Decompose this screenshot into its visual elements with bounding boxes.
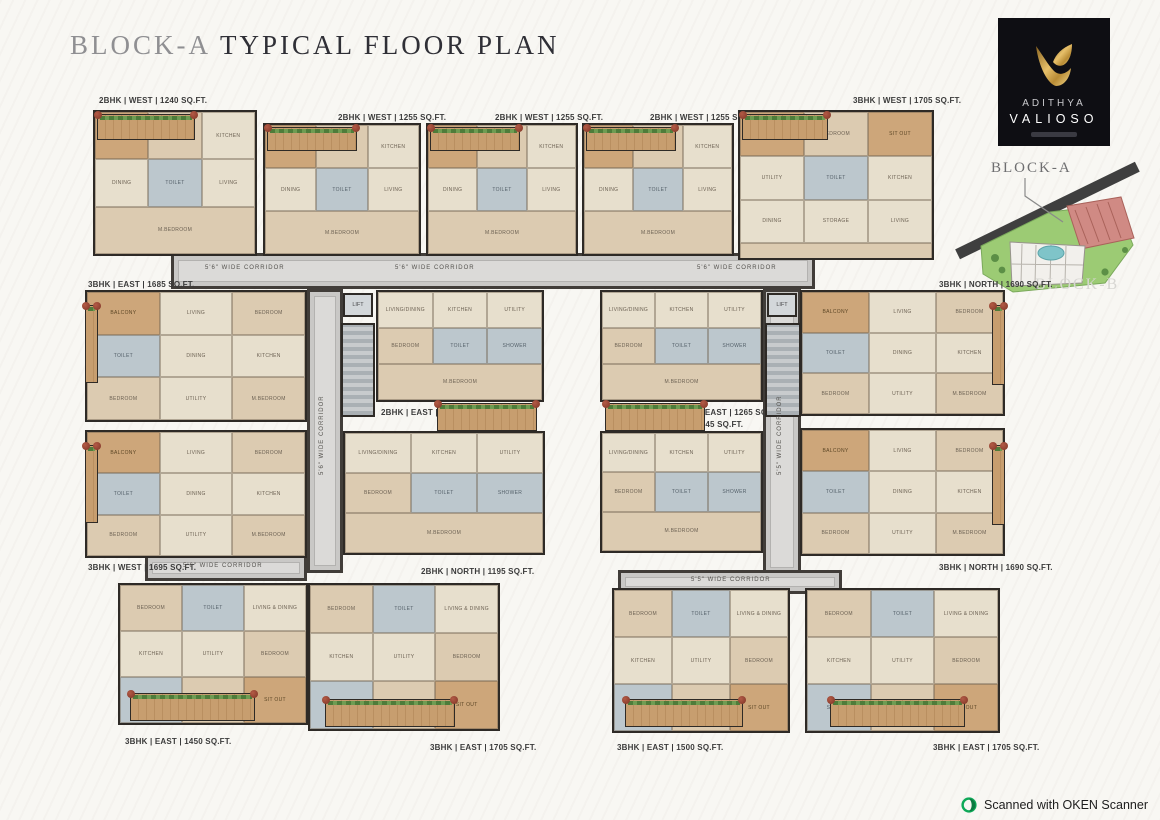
flower-pot: [434, 400, 442, 408]
corridor: [307, 289, 343, 573]
balcony: [992, 445, 1005, 525]
flower-pot: [322, 696, 330, 704]
page-title-text: TYPICAL FLOOR PLAN: [220, 30, 560, 60]
flower-pot: [82, 302, 90, 310]
flower-pot: [93, 442, 101, 450]
room-living: LIVING: [868, 200, 932, 244]
brand-tagline: [1031, 132, 1077, 137]
corridor-label: 5'5" WIDE CORRIDOR: [691, 577, 771, 583]
room-dining: DINING: [584, 168, 633, 211]
room-bedroom: BEDROOM: [378, 328, 433, 364]
flower-pot: [823, 111, 831, 119]
flower-pot: [1000, 442, 1008, 450]
flower-pot: [250, 690, 258, 698]
room-toilet: TOILET: [633, 168, 682, 211]
room-kitchen: KITCHEN: [232, 335, 305, 378]
flower-pot: [1000, 302, 1008, 310]
room-kitchen: KITCHEN: [527, 125, 576, 168]
room-bedroom: BEDROOM: [802, 373, 869, 414]
staircase: [341, 323, 375, 417]
room-bedroom: BEDROOM: [807, 590, 871, 637]
unit-label: 3BHK | NORTH | 1690 SQ.FT.: [939, 563, 1053, 572]
balcony: [605, 403, 705, 431]
unit-label: 2BHK | WEST | 1240 SQ.FT.: [99, 96, 207, 105]
room-toilet: TOILET: [871, 590, 935, 637]
room-dining: DINING: [160, 473, 233, 514]
unit-label: 2BHK | NORTH | 1195 SQ.FT.: [421, 567, 534, 576]
room-utility: UTILITY: [160, 377, 233, 420]
room-toilet: TOILET: [411, 473, 477, 513]
room-living-dining: LIVING/DINING: [602, 433, 655, 472]
unit-label: 3BHK | EAST | 1705 SQ.FT.: [933, 743, 1039, 752]
room-m-bedroom: M.BEDROOM: [232, 515, 305, 556]
lift: LIFT: [767, 293, 797, 317]
room-living-dining: LIVING & DINING: [730, 590, 788, 637]
room-living: LIVING: [683, 168, 732, 211]
lift: LIFT: [343, 293, 373, 317]
room-dining: DINING: [740, 200, 804, 244]
flower-pot: [94, 111, 102, 119]
room-toilet: TOILET: [316, 168, 367, 211]
room-kitchen: KITCHEN: [655, 433, 708, 472]
valioso-swoosh-icon: [1026, 40, 1082, 92]
room-bedroom: BEDROOM: [602, 472, 655, 511]
room-toilet: TOILET: [433, 328, 488, 364]
room-utility: UTILITY: [487, 292, 542, 328]
room-toilet: TOILET: [802, 471, 869, 512]
room-bedroom: BEDROOM: [730, 637, 788, 684]
room-living-dining: LIVING/DINING: [345, 433, 411, 473]
room-m-bedroom: M.BEDROOM: [428, 211, 576, 254]
unit-plan: LIVING/DININGKITCHENUTILITYBEDROOMTOILET…: [343, 431, 545, 555]
brand-name-bottom: VALIOSO: [1010, 112, 1099, 126]
room-m-bedroom: M.BEDROOM: [602, 512, 761, 551]
corridor-label: 5'6" WIDE CORRIDOR: [205, 265, 285, 271]
flower-pot: [989, 302, 997, 310]
room-utility: UTILITY: [373, 633, 436, 681]
room-m-bedroom: M.BEDROOM: [95, 207, 255, 254]
room-kitchen: KITCHEN: [868, 156, 932, 200]
room-living: LIVING: [869, 292, 936, 333]
flower-pot: [739, 111, 747, 119]
balcony: [85, 445, 98, 523]
corridor-label: 5'6" WIDE CORRIDOR: [319, 395, 325, 475]
room-dining: DINING: [160, 335, 233, 378]
unit-label: 3BHK | WEST | 1695 SQ.FT.: [88, 563, 196, 572]
balcony: [625, 699, 743, 727]
flower-pot: [960, 696, 968, 704]
room-living: LIVING: [527, 168, 576, 211]
unit-plan: LIVING/DININGKITCHENUTILITYBEDROOMTOILET…: [600, 431, 763, 553]
room-bedroom: BEDROOM: [310, 585, 373, 633]
room-dining: DINING: [428, 168, 477, 211]
room-utility: UTILITY: [182, 631, 244, 677]
room-kitchen: KITCHEN: [202, 112, 255, 159]
flower-pot: [827, 696, 835, 704]
room-toilet: TOILET: [373, 585, 436, 633]
room-toilet: TOILET: [477, 168, 526, 211]
room-m-bedroom: M.BEDROOM: [602, 364, 761, 400]
room-utility: UTILITY: [871, 637, 935, 684]
room-shower: SHOWER: [487, 328, 542, 364]
room-kitchen: KITCHEN: [310, 633, 373, 681]
balcony: [267, 127, 357, 151]
room-living: LIVING: [160, 432, 233, 473]
page-title: BLOCK-ATYPICAL FLOOR PLAN: [70, 30, 560, 61]
room-bedroom: BEDROOM: [435, 633, 498, 681]
room-living: LIVING: [202, 159, 255, 206]
room-toilet: TOILET: [655, 472, 708, 511]
room-utility: UTILITY: [672, 637, 730, 684]
corridor-label: 5'6" WIDE CORRIDOR: [183, 563, 263, 569]
flower-pot: [671, 124, 679, 132]
unit-label: 3BHK | EAST | 1500 SQ.FT.: [617, 743, 723, 752]
room-m-bedroom: M.BEDROOM: [740, 243, 932, 260]
room-dining: DINING: [869, 471, 936, 512]
room-living-dining: LIVING & DINING: [244, 585, 306, 631]
corridor-label: 5'6" WIDE CORRIDOR: [395, 265, 475, 271]
room-utility: UTILITY: [477, 433, 543, 473]
flower-pot: [989, 442, 997, 450]
room-living: LIVING: [368, 168, 419, 211]
unit-label: 2BHK | WEST | 1255 SQ.FT.: [495, 113, 603, 122]
unit-label: 3BHK | EAST | 1450 SQ.FT.: [125, 737, 231, 746]
room-kitchen: KITCHEN: [655, 292, 708, 328]
room-balcony: BALCONY: [802, 292, 869, 333]
flower-pot: [738, 696, 746, 704]
unit-plan: LIVING/DININGKITCHENUTILITYBEDROOMTOILET…: [600, 290, 763, 402]
room-kitchen: KITCHEN: [368, 125, 419, 168]
room-toilet: TOILET: [655, 328, 708, 364]
room-living: LIVING: [160, 292, 233, 335]
room-living-dining: LIVING/DINING: [378, 292, 433, 328]
floor-plan: BALCONYBEDROOMKITCHENDININGTOILETLIVINGM…: [85, 93, 1020, 761]
scanned-floor-plan-page: BLOCK-ATYPICAL FLOOR PLAN ADITHYA VALIOS…: [0, 0, 1160, 820]
room-bedroom: BEDROOM: [87, 377, 160, 420]
unit-plan: BALCONYLIVINGBEDROOMTOILETDININGKITCHENB…: [800, 428, 1005, 556]
corridor-label: 5'5" WIDE CORRIDOR: [777, 395, 783, 475]
flower-pot: [450, 696, 458, 704]
room-dining: DINING: [265, 168, 316, 211]
unit-plan: BALCONYLIVINGBEDROOMTOILETDININGKITCHENB…: [800, 290, 1005, 416]
room-utility: UTILITY: [740, 156, 804, 200]
unit-plan: BALCONYLIVINGBEDROOMTOILETDININGKITCHENB…: [85, 430, 307, 558]
flower-pot: [532, 400, 540, 408]
room-bedroom: BEDROOM: [802, 513, 869, 554]
room-storage: STORAGE: [804, 200, 868, 244]
room-utility: UTILITY: [708, 433, 761, 472]
room-dining: DINING: [869, 333, 936, 374]
room-bedroom: BEDROOM: [232, 292, 305, 335]
room-shower: SHOWER: [708, 472, 761, 511]
room-m-bedroom: M.BEDROOM: [584, 211, 732, 254]
flower-pot: [427, 124, 435, 132]
flower-pot: [700, 400, 708, 408]
room-bedroom: BEDROOM: [614, 590, 672, 637]
flower-pot: [515, 124, 523, 132]
unit-label: 3BHK | EAST | 1685 SQ.FT.: [88, 280, 194, 289]
balcony: [97, 114, 195, 140]
room-kitchen: KITCHEN: [411, 433, 477, 473]
room-toilet: TOILET: [804, 156, 868, 200]
unit-label: 3BHK | EAST | 1705 SQ.FT.: [430, 743, 536, 752]
flower-pot: [82, 442, 90, 450]
scanner-watermark-text: Scanned with OKEN Scanner: [984, 798, 1148, 812]
balcony: [325, 699, 455, 727]
room-kitchen: KITCHEN: [433, 292, 488, 328]
room-living-dining: LIVING & DINING: [934, 590, 998, 637]
room-utility: UTILITY: [869, 373, 936, 414]
room-living: LIVING: [869, 430, 936, 471]
unit-label: 3BHK | NORTH | 1690 SQ.FT.: [939, 280, 1053, 289]
balcony: [992, 305, 1005, 385]
unit-label: 2BHK | WEST | 1255 SQ.FT.: [338, 113, 446, 122]
room-kitchen: KITCHEN: [120, 631, 182, 677]
flower-pot: [264, 124, 272, 132]
unit-label: 3BHK | WEST | 1705 SQ.FT.: [853, 96, 961, 105]
balcony: [586, 127, 676, 151]
flower-pot: [622, 696, 630, 704]
room-sit-out: SIT OUT: [868, 112, 932, 156]
corridor: [171, 253, 815, 289]
room-kitchen: KITCHEN: [232, 473, 305, 514]
room-utility: UTILITY: [708, 292, 761, 328]
balcony: [742, 114, 828, 140]
staircase: [765, 323, 801, 417]
room-m-bedroom: M.BEDROOM: [378, 364, 542, 400]
flower-pot: [602, 400, 610, 408]
room-bedroom: BEDROOM: [934, 637, 998, 684]
room-bedroom: BEDROOM: [232, 432, 305, 473]
room-bedroom: BEDROOM: [602, 328, 655, 364]
room-balcony: BALCONY: [802, 430, 869, 471]
oken-scanner-icon: [961, 797, 977, 813]
room-kitchen: KITCHEN: [614, 637, 672, 684]
flower-pot: [352, 124, 360, 132]
room-m-bedroom: M.BEDROOM: [232, 377, 305, 420]
room-shower: SHOWER: [477, 473, 543, 513]
room-toilet: TOILET: [802, 333, 869, 374]
room-living-dining: LIVING/DINING: [602, 292, 655, 328]
balcony: [830, 699, 965, 727]
room-toilet: TOILET: [182, 585, 244, 631]
room-shower: SHOWER: [708, 328, 761, 364]
brand-name-top: ADITHYA: [1022, 98, 1086, 109]
room-utility: UTILITY: [869, 513, 936, 554]
flower-pot: [127, 690, 135, 698]
unit-plan: LIVING/DININGKITCHENUTILITYBEDROOMTOILET…: [376, 290, 544, 402]
balcony: [430, 127, 520, 151]
room-m-bedroom: M.BEDROOM: [345, 513, 543, 553]
flower-pot: [93, 302, 101, 310]
room-bedroom: BEDROOM: [244, 631, 306, 677]
balcony: [130, 693, 255, 721]
room-utility: UTILITY: [160, 515, 233, 556]
scanner-watermark: Scanned with OKEN Scanner: [961, 797, 1148, 813]
room-kitchen: KITCHEN: [683, 125, 732, 168]
room-dining: DINING: [95, 159, 148, 206]
room-kitchen: KITCHEN: [807, 637, 871, 684]
flower-pot: [190, 111, 198, 119]
room-m-bedroom: M.BEDROOM: [265, 211, 419, 254]
unit-plan: BALCONYLIVINGBEDROOMTOILETDININGKITCHENB…: [85, 290, 307, 422]
room-toilet: TOILET: [148, 159, 201, 206]
room-living-dining: LIVING & DINING: [435, 585, 498, 633]
room-bedroom: BEDROOM: [120, 585, 182, 631]
balcony: [85, 305, 98, 383]
corridor-label: 5'6" WIDE CORRIDOR: [697, 265, 777, 271]
room-bedroom: BEDROOM: [345, 473, 411, 513]
page-title-block: BLOCK-A: [70, 30, 211, 60]
room-toilet: TOILET: [672, 590, 730, 637]
flower-pot: [583, 124, 591, 132]
balcony: [437, 403, 537, 431]
